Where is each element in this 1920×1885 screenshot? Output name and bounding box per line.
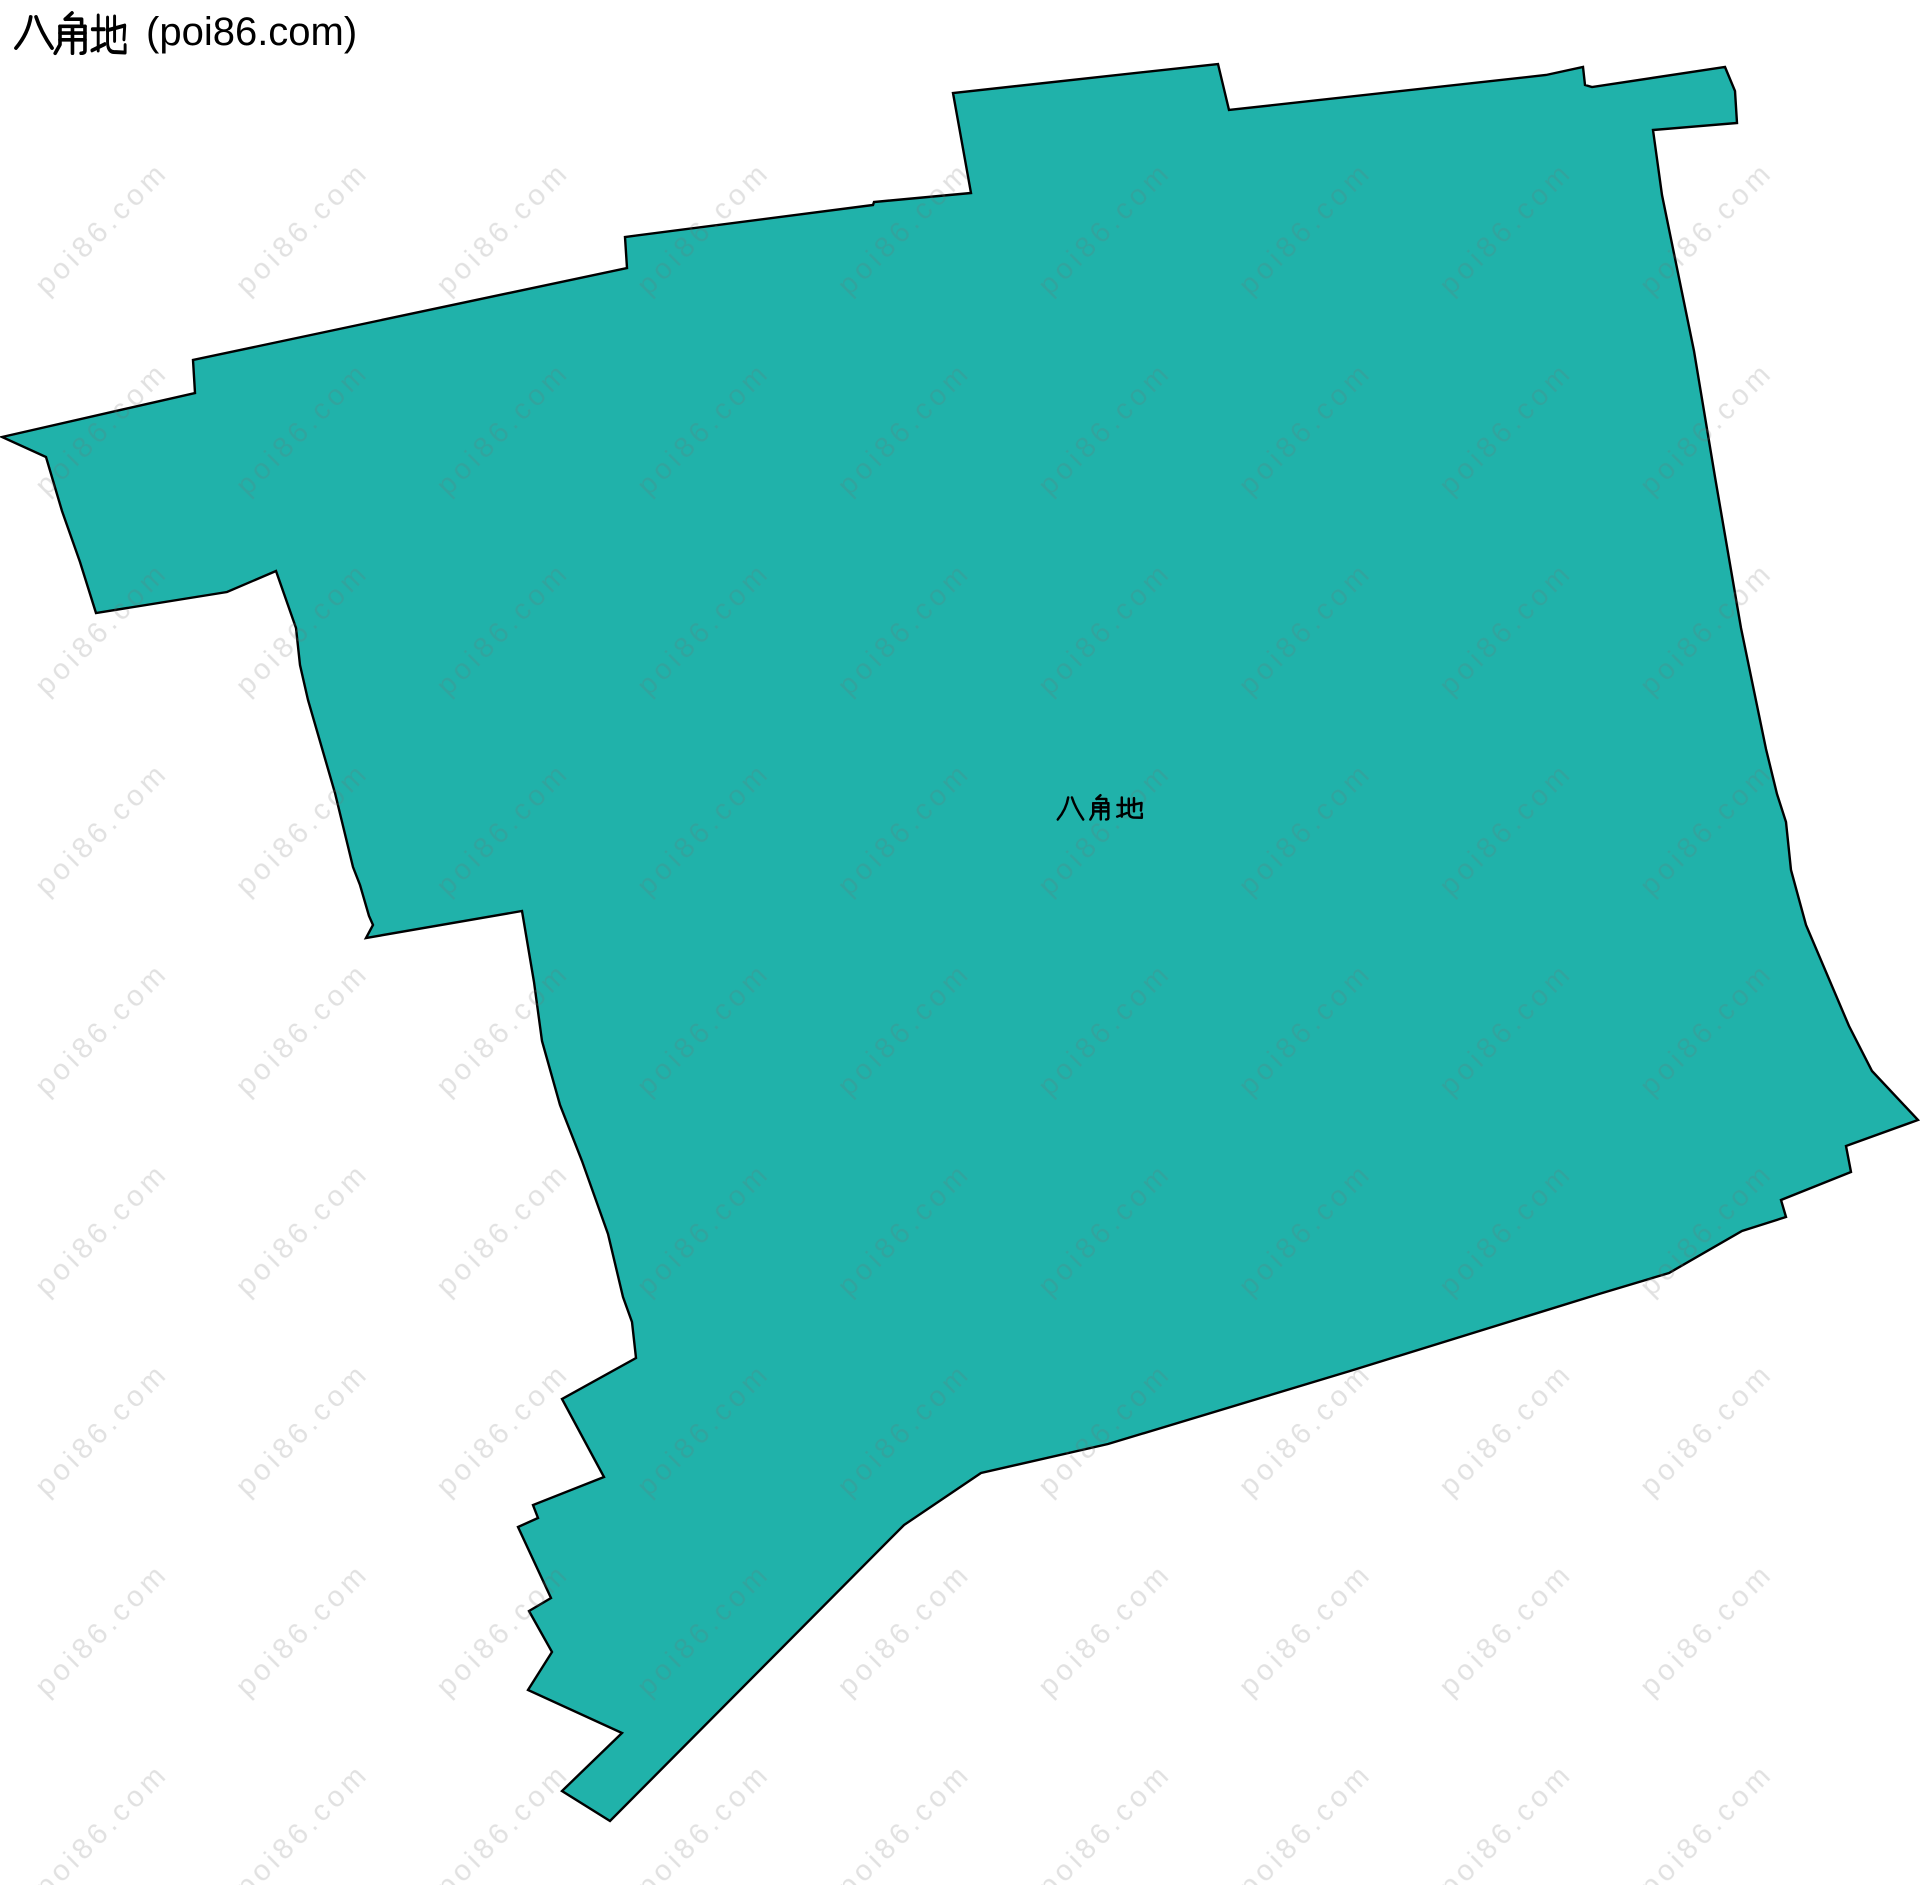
svg-text:(poi86.com): (poi86.com) (146, 10, 357, 54)
